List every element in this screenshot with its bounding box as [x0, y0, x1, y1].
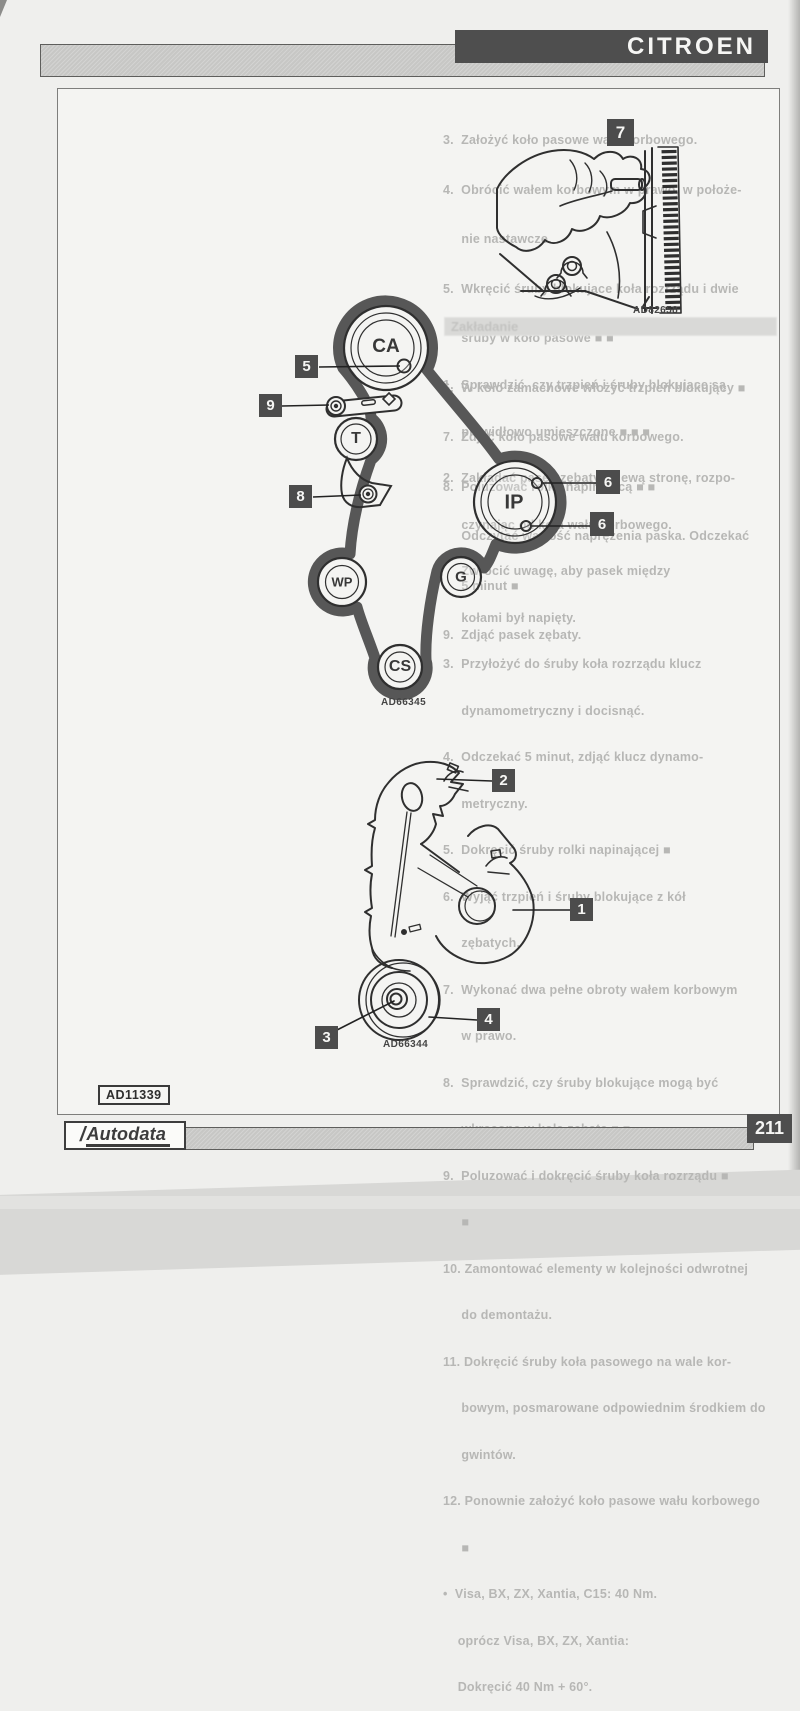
figure-caption-flywheel: AD82658: [633, 305, 678, 316]
ghost-text-line: 10. Zamontować elementy w kolejności odw…: [443, 1262, 776, 1278]
callout-6a: 6: [596, 470, 620, 494]
pulley-label-water-pump: WP: [332, 575, 353, 590]
flywheel-lock-illustration: [497, 147, 681, 313]
ghost-text-line: do demontażu.: [443, 1308, 776, 1324]
tensioner-cover-illustration: [337, 762, 570, 1040]
scanned-manual-page: { "colors": { "accent_dark": "#4e4e4e", …: [0, 0, 800, 1209]
crankshaft-pulley: [359, 960, 440, 1040]
ghost-text-line: • Visa, BX, ZX, Xantia, C15: 40 Nm.: [443, 1587, 776, 1603]
ghost-text-line: oprócz Visa, BX, ZX, Xantia:: [443, 1634, 776, 1650]
pulley-label-crankshaft: CS: [389, 658, 411, 676]
ghost-text-line: ■: [443, 1541, 776, 1557]
figure-caption-cover: AD66344: [383, 1039, 428, 1050]
figure-caption-belt: AD66345: [381, 697, 426, 708]
pulley-label-tensioner: T: [351, 430, 361, 448]
callout-6b: 6: [590, 512, 614, 536]
autodata-logo: / Autodata: [64, 1121, 186, 1150]
ghost-text-line: 12. Ponownie założyć koło pasowe wału ko…: [443, 1494, 776, 1510]
callout-4: 4: [477, 1008, 500, 1031]
callout-5: 5: [295, 355, 318, 378]
pulley-label-camshaft: CA: [372, 336, 399, 358]
callout-1: 1: [570, 898, 593, 921]
callout-3: 3: [315, 1026, 338, 1049]
autodata-logo-slash: /: [80, 1124, 86, 1147]
ghost-text-line: 11. Dokręcić śruby koła pasowego na wale…: [443, 1355, 776, 1371]
belt-routing-illustration: [282, 301, 596, 695]
callout-9: 9: [259, 394, 282, 417]
autodata-logo-text: Autodata: [86, 1125, 170, 1147]
figure-ref-stamp: AD11339: [98, 1085, 170, 1105]
ghost-text-line: Dokręcić 40 Nm + 60°.: [443, 1680, 776, 1696]
page-number: 211: [747, 1114, 792, 1143]
ghost-text-line: gwintów.: [443, 1448, 776, 1464]
callout-8: 8: [289, 485, 312, 508]
pulley-label-guide: G: [455, 569, 467, 586]
ghost-text-line: ■: [443, 1215, 776, 1231]
line-art: [0, 0, 800, 1209]
callout-7: 7: [607, 119, 634, 146]
hose-clamp-fitting-right: [486, 850, 509, 874]
ghost-text-line: bowym, posmarowane odpowiednim środkiem …: [443, 1401, 776, 1417]
callout-2: 2: [492, 769, 515, 792]
pulley-label-injection-pump: IP: [505, 492, 524, 515]
